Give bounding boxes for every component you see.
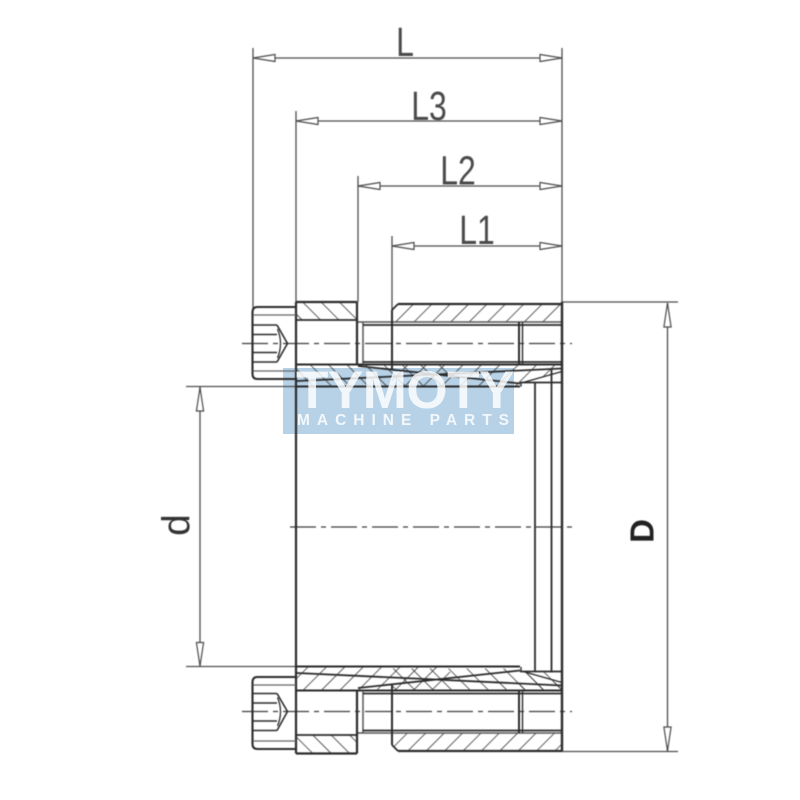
svg-text:L2: L2 <box>440 148 476 194</box>
svg-text:L3: L3 <box>411 83 447 129</box>
svg-text:L: L <box>396 19 414 65</box>
svg-text:L1: L1 <box>459 207 495 253</box>
svg-text:d: d <box>156 514 199 536</box>
svg-text:D: D <box>624 519 661 543</box>
